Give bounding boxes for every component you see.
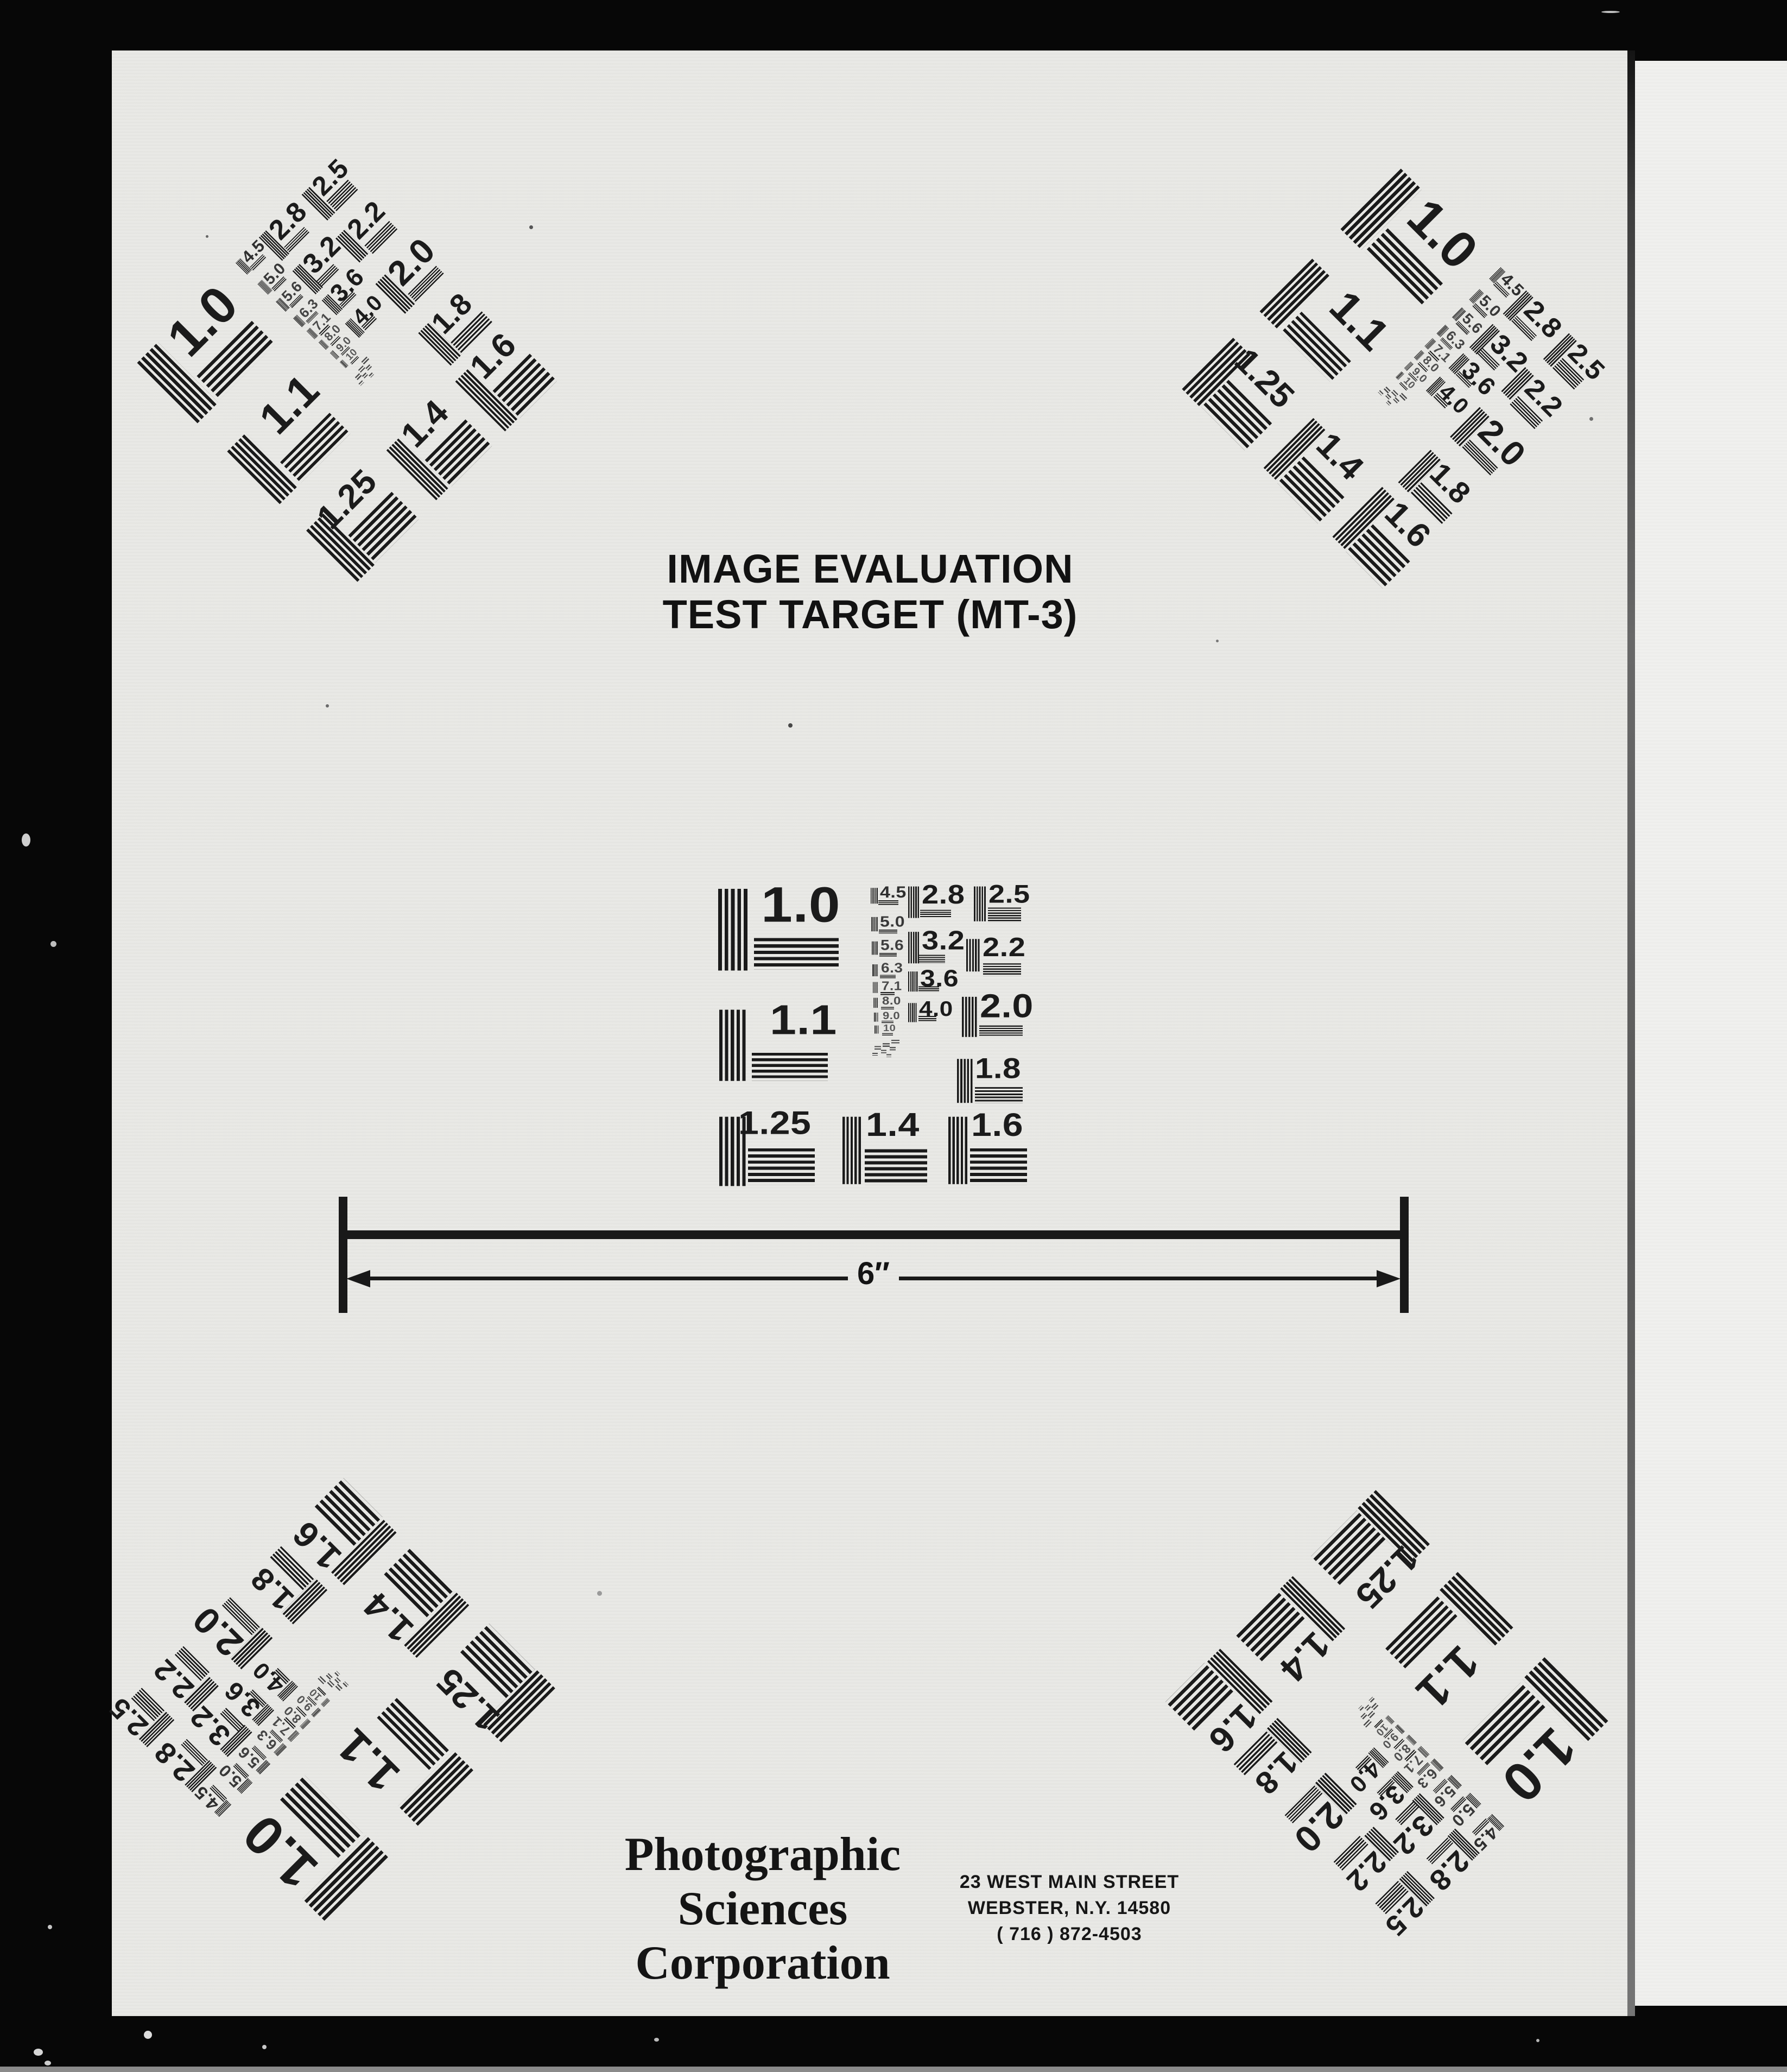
bar-group-vertical <box>330 350 340 360</box>
micro-element-mark <box>1360 1713 1367 1719</box>
bar-group-vertical <box>842 1117 863 1184</box>
dust-speck <box>1589 417 1593 421</box>
resolution-value: 1.0 <box>761 880 840 930</box>
micro-element-mark <box>1399 393 1408 402</box>
bar-group-vertical <box>962 997 978 1037</box>
bar-group-horizontal <box>879 953 897 957</box>
micro-element-mark <box>369 372 374 378</box>
resolution-value: 3.6 <box>920 966 959 990</box>
bar-group-vertical <box>873 998 878 1008</box>
dust-speck <box>1601 11 1620 13</box>
bar-group-horizontal <box>920 910 951 918</box>
arrow-line-left <box>369 1277 848 1280</box>
bar-group-vertical <box>871 917 878 931</box>
address-line: 23 WEST MAIN STREET <box>939 1869 1200 1895</box>
bar-group-horizontal <box>865 1149 927 1185</box>
micro-element-mark <box>365 364 372 371</box>
micro-element-mark <box>334 1671 340 1676</box>
resolution-value: 10 <box>883 1024 896 1033</box>
bar-group-vertical <box>957 1059 974 1103</box>
micro-element-mark <box>327 1679 335 1688</box>
micro-element-mark <box>362 357 370 365</box>
arrowhead-right-icon <box>1377 1270 1401 1287</box>
dust-speck <box>1216 640 1219 642</box>
micro-element-mark <box>1393 397 1399 403</box>
adjacent-page-edge <box>1635 61 1787 2006</box>
bar-group-horizontal <box>752 1053 828 1081</box>
bar-group-horizontal <box>880 975 896 978</box>
micro-element-mark <box>1386 400 1391 406</box>
bar-group-vertical <box>908 887 920 918</box>
micro-element-mark <box>890 1047 896 1050</box>
dust-speck <box>654 2038 659 2042</box>
six-inch-scale: 6″ <box>339 1196 1411 1318</box>
dust-speck <box>144 2031 152 2039</box>
resolution-value: 7.1 <box>882 980 902 992</box>
scan-bottom-edge <box>0 2067 1787 2072</box>
resolution-value: 4.0 <box>919 999 953 1020</box>
micro-element-mark <box>334 1677 341 1684</box>
micro-element-mark <box>362 372 368 378</box>
resolution-value: 6.3 <box>881 962 903 975</box>
bar-group-vertical <box>1385 1715 1395 1724</box>
resolution-value: 5.0 <box>880 914 905 929</box>
title-line-1: IMAGE EVALUATION <box>596 546 1144 592</box>
scale-length-label: 6″ <box>849 1255 898 1292</box>
address-line: ( 716 ) 872-4503 <box>939 1921 1200 1947</box>
resolution-value: 1.1 <box>770 999 837 1040</box>
target-title: IMAGE EVALUATION TEST TARGET (MT-3) <box>596 546 1144 637</box>
bar-group-vertical <box>1396 371 1404 380</box>
scale-bar <box>343 1230 1404 1239</box>
micro-element-mark <box>1371 1703 1379 1710</box>
dust-speck <box>34 2049 43 2056</box>
company-line: Corporation <box>543 1936 983 1991</box>
company-address: 23 WEST MAIN STREET WEBSTER, N.Y. 14580 … <box>939 1869 1200 1947</box>
bar-group-horizontal <box>975 1087 1023 1103</box>
bar-group-vertical <box>872 964 878 976</box>
micro-element-mark <box>1385 394 1391 400</box>
micro-element-mark <box>1363 1719 1372 1727</box>
company-line: Photographic <box>543 1828 983 1882</box>
dust-speck <box>22 833 30 847</box>
bar-group-vertical <box>874 1013 878 1022</box>
resolution-value: 1.6 <box>971 1109 1023 1141</box>
title-line-2: TEST TARGET (MT-3) <box>596 592 1144 637</box>
micro-element-mark <box>872 1053 878 1056</box>
bar-group-vertical <box>872 942 878 955</box>
bar-group-vertical <box>1395 1724 1405 1735</box>
micro-element-mark <box>1391 390 1398 397</box>
resolution-value: 5.6 <box>880 938 904 952</box>
bar-group-horizontal <box>979 1026 1023 1037</box>
bar-group-vertical <box>948 1117 969 1184</box>
resolution-value: 2.5 <box>988 881 1030 907</box>
arrow-line-right <box>899 1277 1378 1280</box>
micro-element-mark <box>1378 390 1383 395</box>
resolution-value: 2.0 <box>980 989 1034 1023</box>
test-target-chart-center: 1.01.11.251.41.62.83.23.64.02.52.22.01.8… <box>700 869 1031 1189</box>
resolution-value: 1.25 <box>738 1107 811 1139</box>
micro-element-mark <box>883 1043 890 1047</box>
resolution-value: 3.2 <box>922 927 965 953</box>
dust-speck <box>597 1591 602 1596</box>
bar-group-vertical <box>873 982 878 993</box>
resolution-value: 9.0 <box>883 1010 900 1021</box>
bar-group-vertical <box>311 1708 321 1718</box>
bar-group-vertical <box>319 339 329 350</box>
micro-element-mark <box>1384 387 1391 394</box>
dust-speck <box>529 225 533 229</box>
micro-element-mark <box>343 1682 348 1688</box>
micro-element-mark <box>881 1050 886 1053</box>
scale-end-bar-right <box>1400 1197 1409 1313</box>
micro-element-mark <box>355 373 362 380</box>
bar-group-horizontal <box>748 1148 815 1185</box>
arrowhead-left-icon <box>346 1270 370 1287</box>
dust-speck <box>262 2045 267 2049</box>
bar-group-vertical <box>300 1718 311 1729</box>
micro-element-mark <box>335 1684 343 1691</box>
micro-element-mark <box>891 1040 899 1044</box>
dust-speck <box>1536 2039 1539 2042</box>
company-name: Photographic Sciences Corporation <box>543 1828 983 1991</box>
bar-group-vertical <box>321 1698 330 1707</box>
bar-group-vertical <box>974 887 987 921</box>
scale-end-bar-left <box>339 1197 347 1313</box>
dust-speck <box>326 704 329 707</box>
address-line: WEBSTER, N.Y. 14580 <box>939 1895 1200 1921</box>
micro-element-mark <box>1367 1710 1375 1719</box>
resolution-value: 4.5 <box>880 884 907 900</box>
resolution-value: 1.8 <box>975 1054 1021 1083</box>
bar-group-vertical <box>908 971 918 991</box>
bar-group-vertical <box>340 359 348 368</box>
dust-speck <box>45 2061 51 2065</box>
micro-element-mark <box>875 1046 881 1050</box>
micro-element-mark <box>358 380 364 386</box>
bar-group-horizontal <box>918 955 945 963</box>
micro-element-mark <box>1358 1705 1364 1711</box>
micro-element-mark <box>1369 1697 1375 1703</box>
dust-speck <box>48 1925 52 1929</box>
bar-group-vertical <box>718 889 750 970</box>
resolution-value: 8.0 <box>882 995 901 1007</box>
bar-group-horizontal <box>970 1148 1027 1185</box>
dust-speck <box>206 235 208 238</box>
bar-group-vertical <box>871 888 878 904</box>
bar-group-vertical <box>1404 362 1414 371</box>
bar-group-vertical <box>908 1003 917 1022</box>
bar-group-horizontal <box>879 930 897 934</box>
scanner-background: 1.01.11.251.41.62.83.23.64.02.52.22.01.8… <box>0 0 1787 2072</box>
micro-element-mark <box>1365 1704 1371 1711</box>
resolution-value: 2.8 <box>922 881 965 908</box>
bar-group-vertical <box>719 1010 748 1081</box>
bar-group-horizontal <box>754 938 839 970</box>
micro-element-mark <box>326 1673 332 1679</box>
micro-element-mark <box>886 1054 891 1057</box>
dust-speck <box>788 723 793 728</box>
micro-element-mark <box>318 1676 326 1684</box>
resolution-value: 2.2 <box>983 934 1025 961</box>
bar-group-horizontal <box>988 907 1021 922</box>
dust-speck <box>50 941 56 947</box>
bar-group-vertical <box>966 939 981 971</box>
bar-group-vertical <box>875 1026 879 1034</box>
company-line: Sciences <box>543 1882 983 1936</box>
bar-group-horizontal <box>983 963 1021 976</box>
micro-element-mark <box>358 365 366 373</box>
bar-group-vertical <box>1405 1735 1417 1746</box>
resolution-value: 1.4 <box>866 1108 920 1141</box>
